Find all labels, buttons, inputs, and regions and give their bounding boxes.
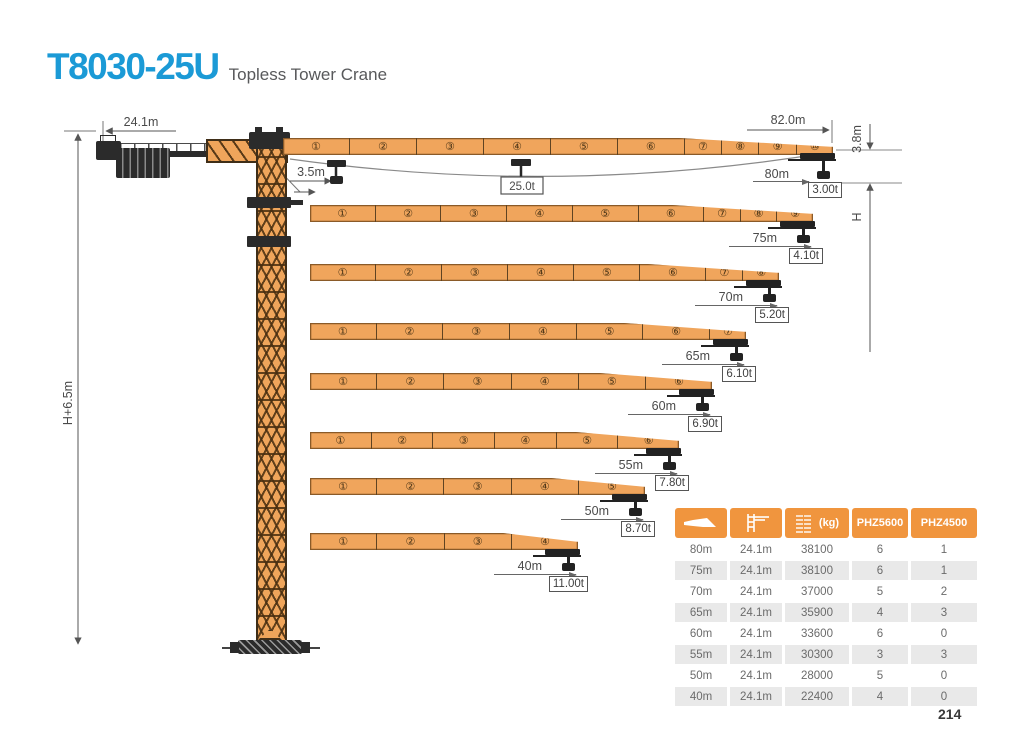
ballast-unit-label: (kg) <box>819 517 839 529</box>
trolley-icon <box>800 153 835 159</box>
jib-segment-number: ① <box>310 323 377 340</box>
tip-capacity-box: 3.00t <box>808 182 842 198</box>
cell: 3 <box>911 603 977 622</box>
jib-length-icon <box>683 516 719 530</box>
page-header: T8030-25U Topless Tower Crane <box>47 48 387 85</box>
jib-length-label: 82.0m <box>771 113 806 127</box>
jib-82m: ①②③④⑤⑥⑦⑧⑨⑩ <box>283 138 833 155</box>
jib-segment-number: ② <box>350 138 417 155</box>
jib-segment-number: ⑤ <box>551 138 618 155</box>
jib-segment-number: ③ <box>433 432 495 449</box>
cell: 28000 <box>785 666 849 685</box>
cell: 5 <box>852 582 908 601</box>
tower-collar-tab <box>288 200 303 205</box>
cell: 35900 <box>785 603 849 622</box>
jib-segment-number: ④ <box>508 264 574 281</box>
jib-segment-number: ⑧ <box>741 205 778 222</box>
table-row: 55m24.1m3030033 <box>675 645 977 664</box>
leader-arrow <box>628 414 710 415</box>
cell: 24.1m <box>730 582 782 601</box>
jib-segment-number: ⑤ <box>579 373 646 390</box>
jib-config-80m: ①②③④⑤⑥⑦⑧⑨⑩ 80m 3.00t <box>283 138 833 200</box>
cell: 33600 <box>785 624 849 643</box>
leader-arrow <box>662 364 744 365</box>
jib-segment-number: ① <box>310 432 372 449</box>
hook-icon <box>668 455 671 463</box>
radius-label: 75m <box>753 231 777 245</box>
cell: 6 <box>852 540 908 559</box>
cell: 0 <box>911 687 977 706</box>
jib-segment-number: ⑥ <box>639 205 705 222</box>
trolley-icon <box>646 448 681 454</box>
jib-segment-number: ② <box>377 533 444 550</box>
jib-segment-number: ③ <box>442 264 508 281</box>
jib-segment-number: ② <box>377 478 444 495</box>
radius-label: 70m <box>719 290 743 304</box>
leader-arrow <box>729 246 811 247</box>
jib-65m: ①②③④⑤⑥⑦ <box>310 323 746 340</box>
jib-segment-number: ⑨ <box>759 138 796 155</box>
cell: 24.1m <box>730 645 782 664</box>
trolley-icon <box>679 389 714 395</box>
jib-segment-number: ④ <box>512 373 579 390</box>
jib-segment-number: ④ <box>484 138 551 155</box>
jib-segment-number: ① <box>283 138 350 155</box>
jib-55m: ①②③④⑤⑥ <box>310 432 679 449</box>
tip-capacity-box: 11.00t <box>549 576 588 592</box>
cell: 80m <box>675 540 727 559</box>
base-foot <box>301 642 310 653</box>
radius-label: 80m <box>765 167 789 181</box>
hook-icon <box>634 501 637 509</box>
tip-offset-label: 3.8m <box>850 125 864 153</box>
jib-50m: ①②③④⑤ <box>310 478 645 495</box>
jib-segment-number: ② <box>377 323 444 340</box>
counterweight-blocks <box>116 148 170 178</box>
cell: 4 <box>852 603 908 622</box>
jib-config-50m: ①②③④⑤ 50m 8.70t <box>310 478 645 540</box>
jib-segment-number: ⑦ <box>710 323 746 340</box>
jib-segment-number: ⑦ <box>685 138 722 155</box>
jib-segment-number: ⑧ <box>722 138 759 155</box>
col-header-counter-jib <box>730 508 782 538</box>
cell: 24.1m <box>730 624 782 643</box>
jib-config-75m: ①②③④⑤⑥⑦⑧⑨ 75m 4.10t <box>310 205 813 267</box>
leader-arrow <box>494 574 576 575</box>
tip-capacity-box: 8.70t <box>621 521 655 537</box>
tower-mast <box>256 148 287 642</box>
cell: 3 <box>852 645 908 664</box>
cell: 24.1m <box>730 687 782 706</box>
table-row: 75m24.1m3810061 <box>675 561 977 580</box>
cell: 50m <box>675 666 727 685</box>
jib-segment-number: ④ <box>510 323 577 340</box>
jib-segment-number: ⑥ <box>640 264 706 281</box>
cell: 30300 <box>785 645 849 664</box>
jib-segment-number: ① <box>310 264 376 281</box>
trolley-icon <box>545 549 580 555</box>
tip-capacity-box: 6.90t <box>688 416 722 432</box>
hook-icon <box>701 396 704 404</box>
cell: 37000 <box>785 582 849 601</box>
cell: 24.1m <box>730 540 782 559</box>
trolley-icon <box>746 280 781 286</box>
trolley-icon <box>713 339 748 345</box>
tip-capacity-box: 6.10t <box>722 366 756 382</box>
jib-segment-number: ⑤ <box>573 205 639 222</box>
jib-segment-number: ② <box>372 432 434 449</box>
cell: 38100 <box>785 540 849 559</box>
jib-60m: ①②③④⑤⑥ <box>310 373 712 390</box>
jib-75m: ①②③④⑤⑥⑦⑧⑨ <box>310 205 813 222</box>
counter-jib-length-label: 24.1m <box>124 115 159 129</box>
spec-table-header: (kg) PHZ5600 PHZ4500 <box>675 508 977 538</box>
jib-segment-number: ⑥ <box>618 138 685 155</box>
hook-icon <box>567 556 570 564</box>
jib-segment-number: ① <box>310 373 377 390</box>
jib-segment-number: ③ <box>444 478 511 495</box>
cell: 6 <box>852 561 908 580</box>
table-row: 80m24.1m3810061 <box>675 540 977 559</box>
cell: 2 <box>911 582 977 601</box>
trolley-icon <box>780 221 815 227</box>
page-number: 214 <box>938 706 961 722</box>
radius-label: 55m <box>619 458 643 472</box>
cell: 0 <box>911 624 977 643</box>
cell: 6 <box>852 624 908 643</box>
table-row: 60m24.1m3360060 <box>675 624 977 643</box>
radius-label: 50m <box>585 504 609 518</box>
cell: 75m <box>675 561 727 580</box>
jib-segment-number: ① <box>310 478 377 495</box>
cell: 5 <box>852 666 908 685</box>
cell: 3 <box>911 645 977 664</box>
cell: 24.1m <box>730 561 782 580</box>
jib-segment-number: ⑦ <box>706 264 743 281</box>
jib-40m: ①②③④ <box>310 533 578 550</box>
spec-table: (kg) PHZ5600 PHZ4500 80m24.1m3810061 75m… <box>675 508 977 706</box>
jib-segment-number: ① <box>310 205 376 222</box>
cell: 65m <box>675 603 727 622</box>
jib-segment-number: ⑦ <box>704 205 741 222</box>
jib-segment-number: ⑤ <box>574 264 640 281</box>
table-row: 50m24.1m2800050 <box>675 666 977 685</box>
jib-config-60m: ①②③④⑤⑥ 60m 6.90t <box>310 373 712 435</box>
counter-jib-icon <box>741 513 771 533</box>
hook-icon <box>802 228 805 236</box>
jib-segment-number: ④ <box>495 432 557 449</box>
hook-icon <box>735 346 738 354</box>
jib-segment-number: ④ <box>512 478 579 495</box>
base-foot <box>230 642 239 653</box>
jib-segment-number: ③ <box>441 205 507 222</box>
page-title: T8030-25U <box>47 48 219 85</box>
leader-arrow <box>561 519 643 520</box>
cap-stud <box>255 127 262 133</box>
ballast-icon <box>795 513 817 533</box>
jib-segment-number: ③ <box>443 323 510 340</box>
col-header-jib-length <box>675 508 727 538</box>
leader-arrow <box>753 181 809 182</box>
jib-config-40m: ①②③④ 40m 11.00t <box>310 533 578 595</box>
jib-segment-number: ⑧ <box>743 264 779 281</box>
jib-segment-number: ④ <box>512 533 578 550</box>
tip-capacity-box: 4.10t <box>789 248 823 264</box>
crane-base <box>238 640 302 654</box>
hook-height-label: H <box>850 212 864 221</box>
page-subtitle: Topless Tower Crane <box>229 65 387 85</box>
cell: 1 <box>911 561 977 580</box>
cell: 70m <box>675 582 727 601</box>
cell: 24.1m <box>730 666 782 685</box>
jib-segment-number: ⑤ <box>577 323 644 340</box>
col-header-phz5600: PHZ5600 <box>852 508 908 538</box>
cell: 60m <box>675 624 727 643</box>
hook-icon <box>768 287 771 295</box>
cell: 40m <box>675 687 727 706</box>
leader-arrow <box>595 473 677 474</box>
cell: 1 <box>911 540 977 559</box>
jib-segment-number: ① <box>310 533 377 550</box>
col-header-ballast: (kg) <box>785 508 849 538</box>
jib-segment-number: ② <box>376 205 442 222</box>
radius-label: 60m <box>652 399 676 413</box>
jib-segment-number: ⑤ <box>557 432 619 449</box>
jib-segment-number: ③ <box>444 373 511 390</box>
table-row: 40m24.1m2240040 <box>675 687 977 706</box>
cell: 4 <box>852 687 908 706</box>
jib-config-70m: ①②③④⑤⑥⑦⑧ 70m 5.20t <box>310 264 779 326</box>
tip-capacity-box: 5.20t <box>755 307 789 323</box>
jib-segment-number: ⑥ <box>646 373 712 390</box>
cell: 0 <box>911 666 977 685</box>
jib-segment-number: ⑥ <box>618 432 679 449</box>
cell: 24.1m <box>730 603 782 622</box>
jib-segment-number: ⑤ <box>579 478 645 495</box>
counter-jib-tip-platform <box>96 141 121 160</box>
cell: 38100 <box>785 561 849 580</box>
jib-segment-number: ③ <box>445 533 512 550</box>
jib-70m: ①②③④⑤⑥⑦⑧ <box>310 264 779 281</box>
jib-segment-number: ⑥ <box>643 323 710 340</box>
jib-segment-number: ③ <box>417 138 484 155</box>
col-header-phz4500: PHZ4500 <box>911 508 977 538</box>
jib-segment-number: ② <box>376 264 442 281</box>
radius-label: 40m <box>518 559 542 573</box>
radius-label: 65m <box>686 349 710 363</box>
leader-arrow <box>695 305 777 306</box>
hook-icon <box>822 160 825 172</box>
catalog-page: T8030-25U Topless Tower Crane H+6.5m 24.… <box>0 0 1024 754</box>
counter-jib-tip-railing <box>100 135 116 143</box>
cap-stud <box>276 127 283 133</box>
total-height-label: H+6.5m <box>61 381 75 425</box>
jib-segment-number: ② <box>377 373 444 390</box>
tower-collar <box>247 236 291 247</box>
table-row: 65m24.1m3590043 <box>675 603 977 622</box>
jib-segment-number: ④ <box>507 205 573 222</box>
trolley-icon <box>612 494 647 500</box>
cell: 22400 <box>785 687 849 706</box>
table-row: 70m24.1m3700052 <box>675 582 977 601</box>
cell: 55m <box>675 645 727 664</box>
tip-capacity-box: 7.80t <box>655 475 689 491</box>
jib-segment-number: ⑨ <box>777 205 813 222</box>
